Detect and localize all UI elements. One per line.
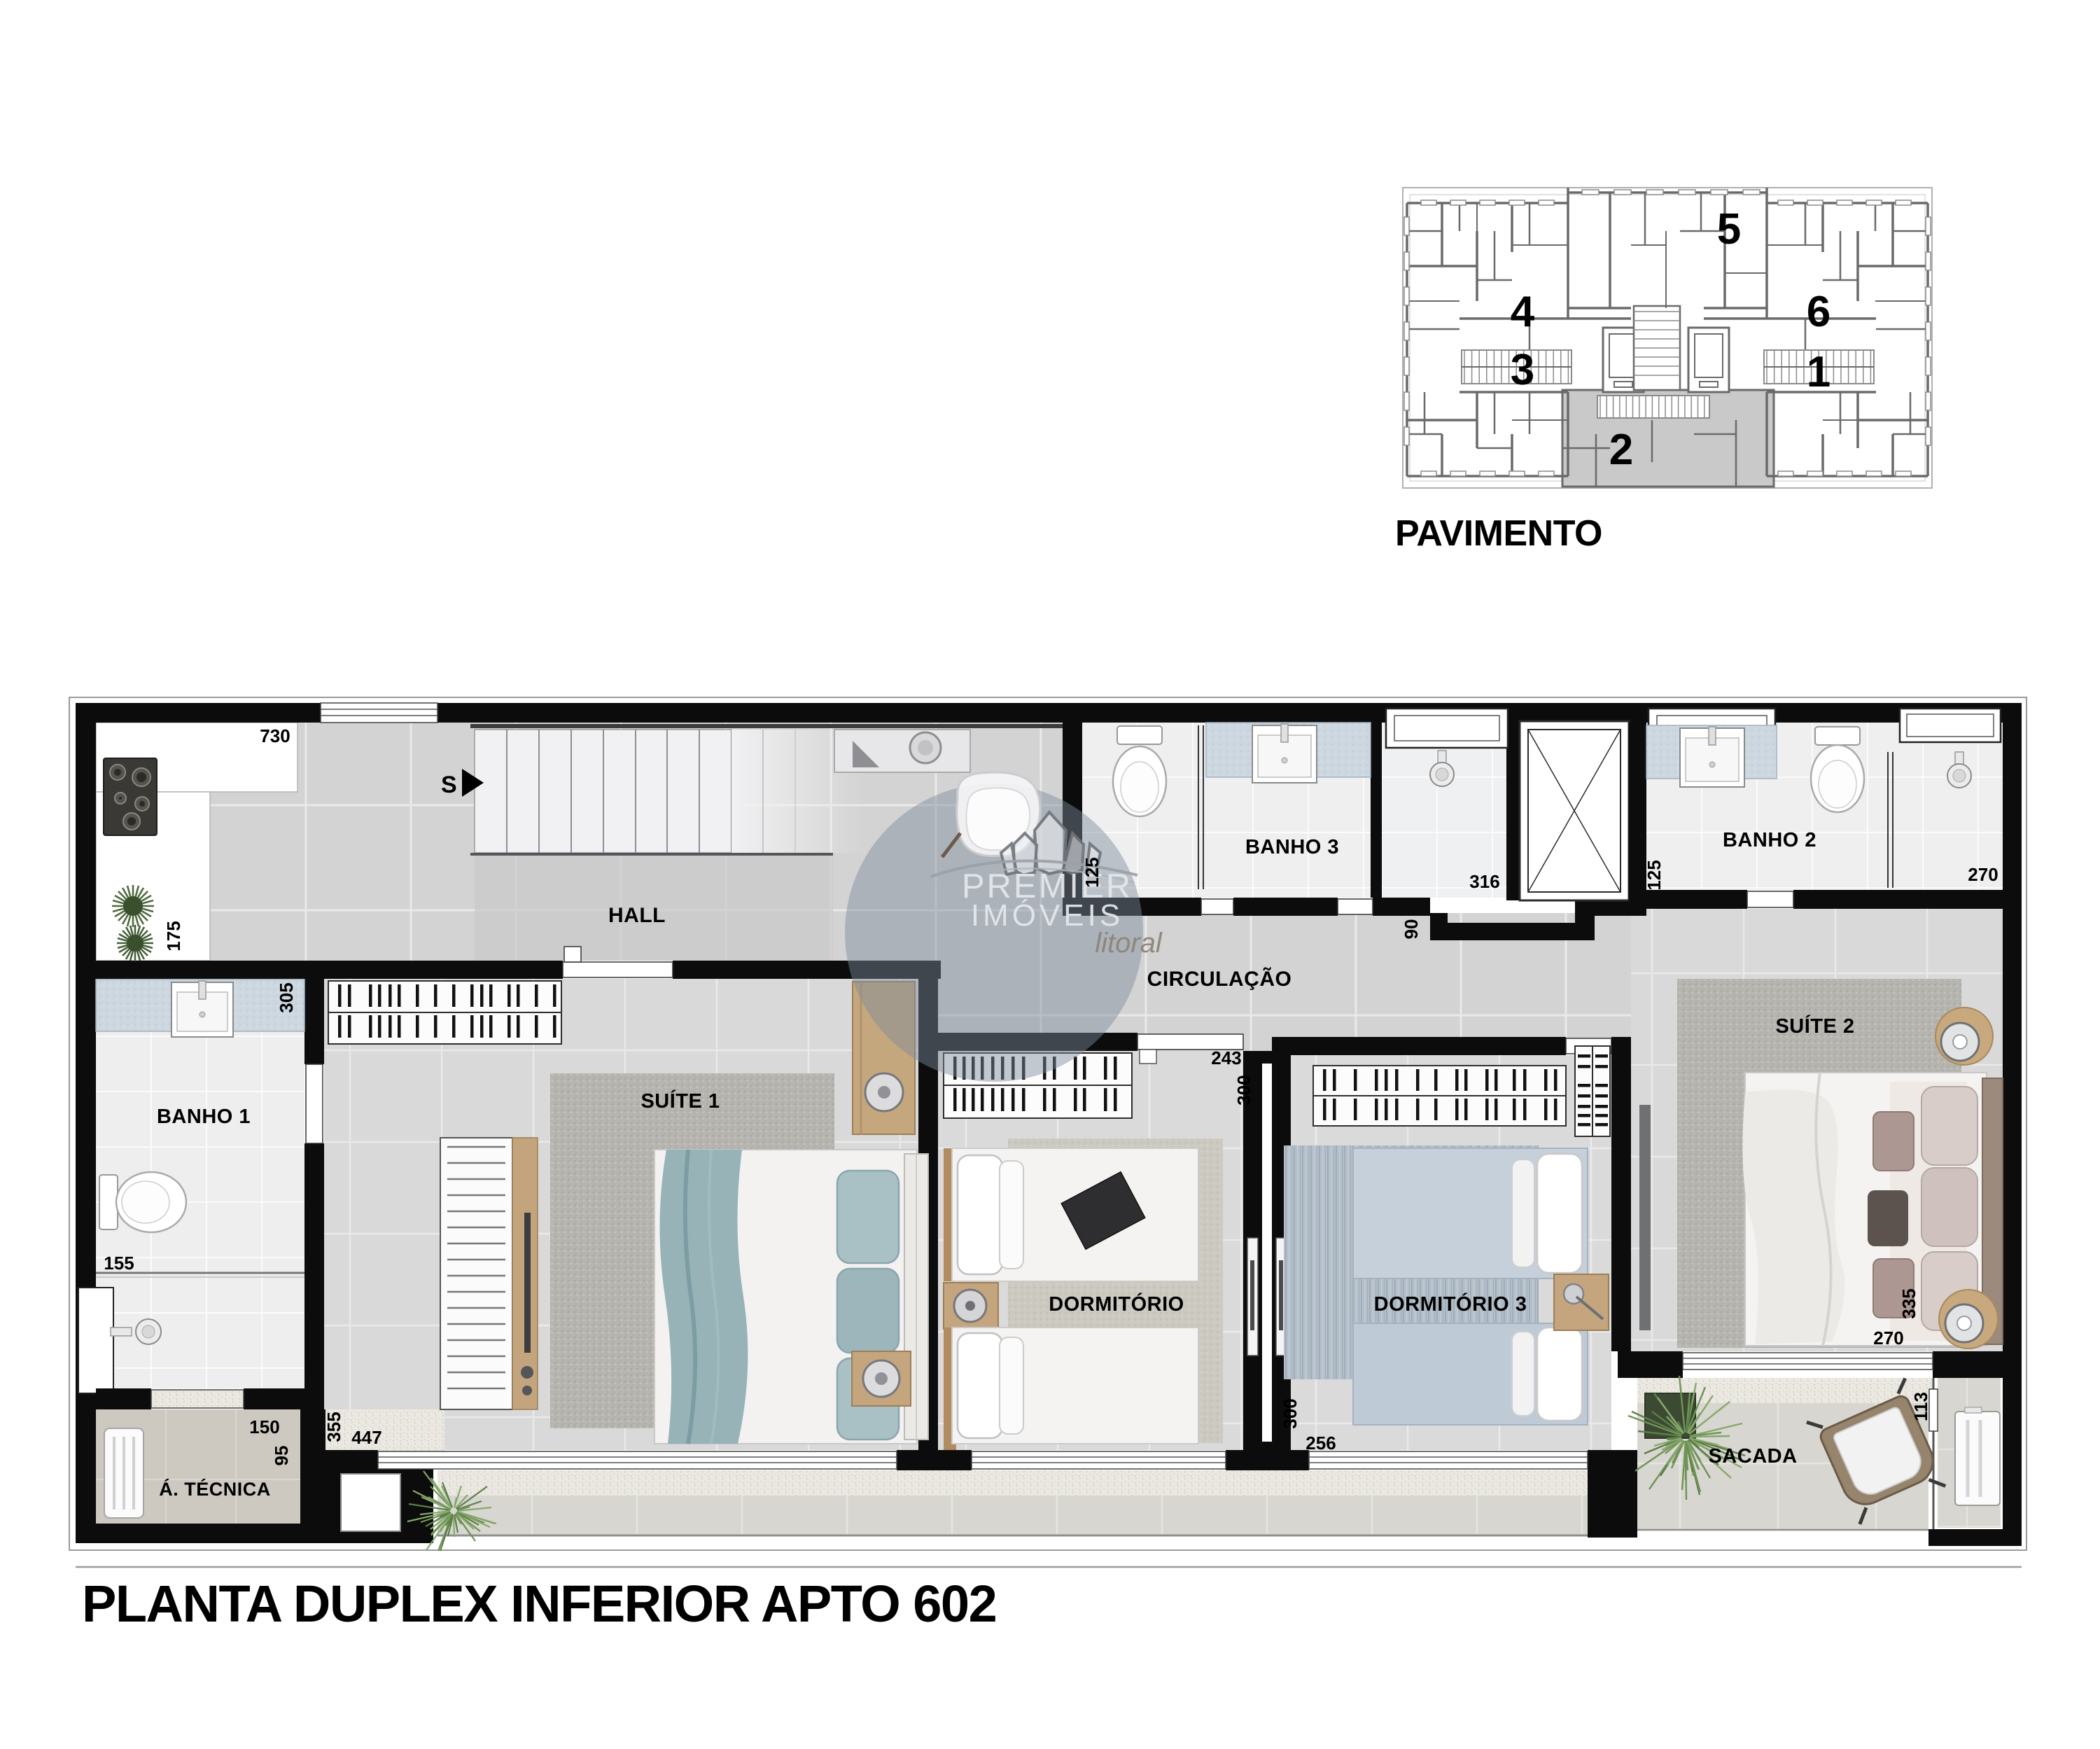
svg-text:270: 270 bbox=[1873, 1328, 1903, 1349]
svg-text:Á. TÉCNICA: Á. TÉCNICA bbox=[159, 1478, 271, 1500]
svg-text:3: 3 bbox=[1511, 346, 1534, 394]
svg-text:PLANTA DUPLEX INFERIOR APTO: PLANTA DUPLEX INFERIOR APTO 602 bbox=[82, 1575, 996, 1633]
svg-text:270: 270 bbox=[1968, 864, 1998, 885]
svg-text:4: 4 bbox=[1511, 288, 1535, 336]
svg-text:DORMITÓRIO 3: DORMITÓRIO 3 bbox=[1374, 1292, 1527, 1316]
svg-text:5: 5 bbox=[1717, 205, 1741, 253]
svg-text:BANHO 2: BANHO 2 bbox=[1723, 829, 1816, 851]
svg-text:90: 90 bbox=[1401, 919, 1422, 940]
svg-text:95: 95 bbox=[271, 1446, 292, 1466]
svg-text:125: 125 bbox=[1644, 860, 1665, 890]
svg-text:DORMITÓRIO: DORMITÓRIO bbox=[1049, 1292, 1184, 1316]
svg-text:HALL: HALL bbox=[608, 904, 666, 927]
svg-text:256: 256 bbox=[1305, 1433, 1336, 1454]
svg-text:730: 730 bbox=[260, 725, 290, 746]
svg-text:155: 155 bbox=[104, 1253, 134, 1274]
svg-text:SUÍTE 2: SUÍTE 2 bbox=[1775, 1014, 1854, 1038]
svg-text:355: 355 bbox=[323, 1412, 344, 1442]
svg-text:335: 335 bbox=[1898, 1288, 1919, 1318]
svg-text:S: S bbox=[441, 772, 457, 798]
svg-text:316: 316 bbox=[1469, 871, 1499, 892]
svg-text:150: 150 bbox=[249, 1416, 279, 1437]
svg-text:BANHO 1: BANHO 1 bbox=[157, 1106, 251, 1128]
svg-text:243: 243 bbox=[1211, 1047, 1241, 1068]
svg-text:113: 113 bbox=[1910, 1392, 1931, 1421]
svg-text:175: 175 bbox=[163, 921, 184, 951]
svg-text:305: 305 bbox=[276, 982, 297, 1012]
svg-text:300: 300 bbox=[1280, 1398, 1301, 1428]
svg-text:125: 125 bbox=[1081, 857, 1102, 887]
svg-text:SUÍTE 1: SUÍTE 1 bbox=[640, 1089, 720, 1113]
svg-text:SACADA: SACADA bbox=[1708, 1445, 1797, 1468]
svg-text:PAVIMENTO: PAVIMENTO bbox=[1395, 513, 1602, 554]
svg-text:CIRCULAÇÃO: CIRCULAÇÃO bbox=[1147, 967, 1292, 991]
svg-text:1: 1 bbox=[1807, 348, 1830, 396]
svg-text:litoral: litoral bbox=[1095, 928, 1163, 959]
svg-text:300: 300 bbox=[1233, 1075, 1254, 1105]
svg-text:BANHO 3: BANHO 3 bbox=[1245, 836, 1339, 858]
svg-text:2: 2 bbox=[1609, 426, 1633, 474]
svg-text:6: 6 bbox=[1807, 288, 1830, 336]
svg-text:447: 447 bbox=[351, 1427, 381, 1448]
